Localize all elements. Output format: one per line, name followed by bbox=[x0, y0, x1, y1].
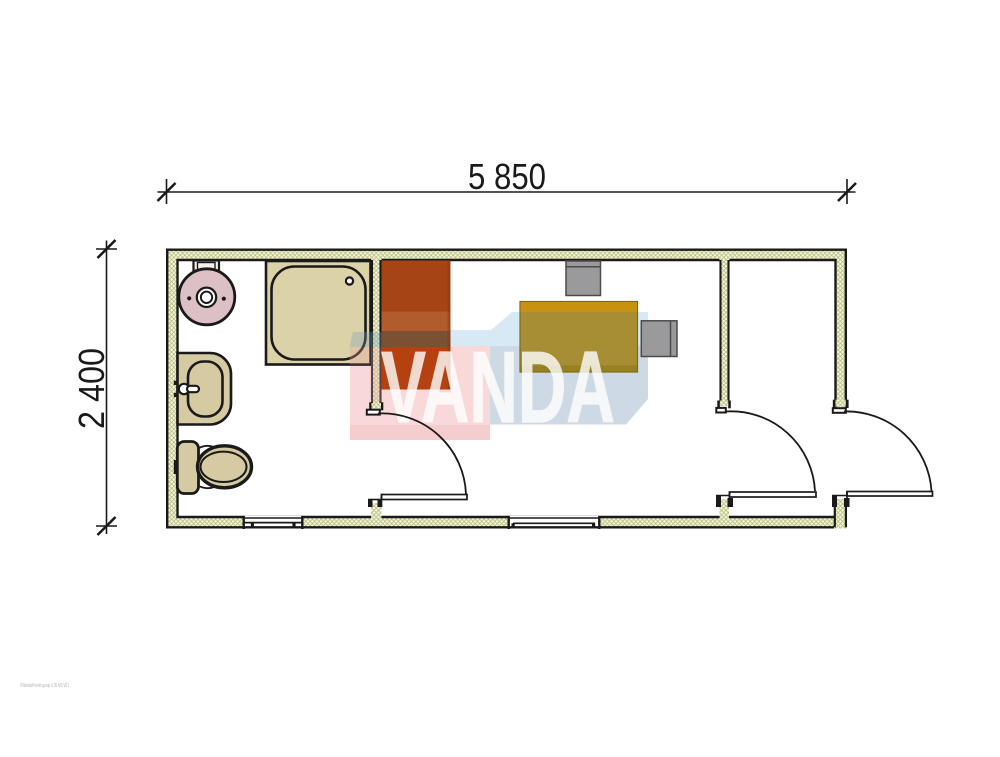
svg-text:2 400: 2 400 bbox=[71, 348, 112, 429]
svg-text:VANDA: VANDA bbox=[381, 331, 615, 444]
svg-text:5 850: 5 850 bbox=[468, 156, 546, 197]
svg-text:©WandaProekt-group 6.35 M3.V01: ©WandaProekt-group 6.35 M3.V01 bbox=[20, 682, 69, 689]
